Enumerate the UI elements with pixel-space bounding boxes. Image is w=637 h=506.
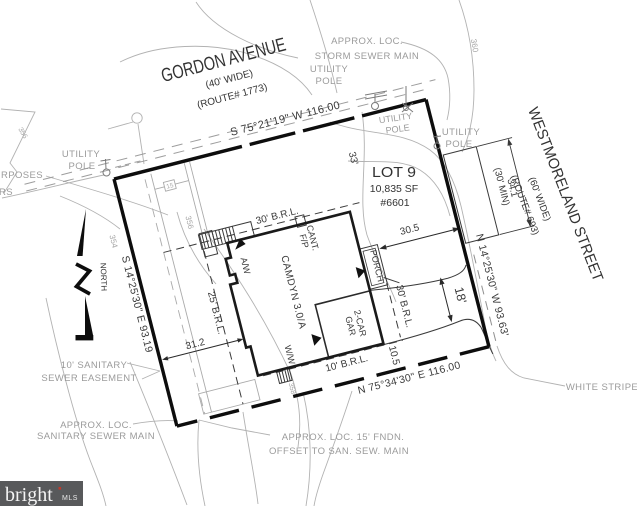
svg-text:APPROX. LOC.: APPROX. LOC. bbox=[331, 36, 403, 47]
svg-text:10' SANITARY: 10' SANITARY bbox=[61, 360, 128, 371]
svg-text:POLE: POLE bbox=[316, 76, 343, 87]
svg-text:RS: RS bbox=[0, 187, 13, 198]
svg-text:WHITE STRIPE: WHITE STRIPE bbox=[566, 382, 637, 393]
svg-text:UTILITY: UTILITY bbox=[310, 64, 348, 75]
svg-text:OFFSET TO SAN. SEW. MAIN: OFFSET TO SAN. SEW. MAIN bbox=[269, 446, 409, 457]
svg-text:LOT 9: LOT 9 bbox=[372, 164, 416, 181]
svg-text:MLS: MLS bbox=[62, 495, 78, 502]
svg-text:APPROX. LOC. 15' FNDN.: APPROX. LOC. 15' FNDN. bbox=[282, 432, 405, 443]
svg-text:10,835 SF: 10,835 SF bbox=[370, 183, 418, 195]
svg-text:UTILITY: UTILITY bbox=[442, 127, 480, 138]
svg-text:UTILITY: UTILITY bbox=[62, 149, 100, 160]
svg-text:APPROX. LOC.: APPROX. LOC. bbox=[60, 420, 132, 431]
svg-text:NORTH: NORTH bbox=[99, 263, 109, 292]
svg-text:SEWER EASEMENT: SEWER EASEMENT bbox=[41, 373, 136, 384]
svg-text:URPOSES: URPOSES bbox=[0, 170, 43, 181]
svg-text:bright: bright bbox=[5, 484, 53, 506]
svg-text:POLE: POLE bbox=[446, 139, 473, 150]
svg-text:STORM SEWER MAIN: STORM SEWER MAIN bbox=[315, 51, 419, 62]
svg-text:SANITARY SEWER MAIN: SANITARY SEWER MAIN bbox=[37, 431, 155, 442]
svg-text:#6601: #6601 bbox=[380, 197, 409, 209]
svg-text:POLE: POLE bbox=[69, 161, 96, 172]
